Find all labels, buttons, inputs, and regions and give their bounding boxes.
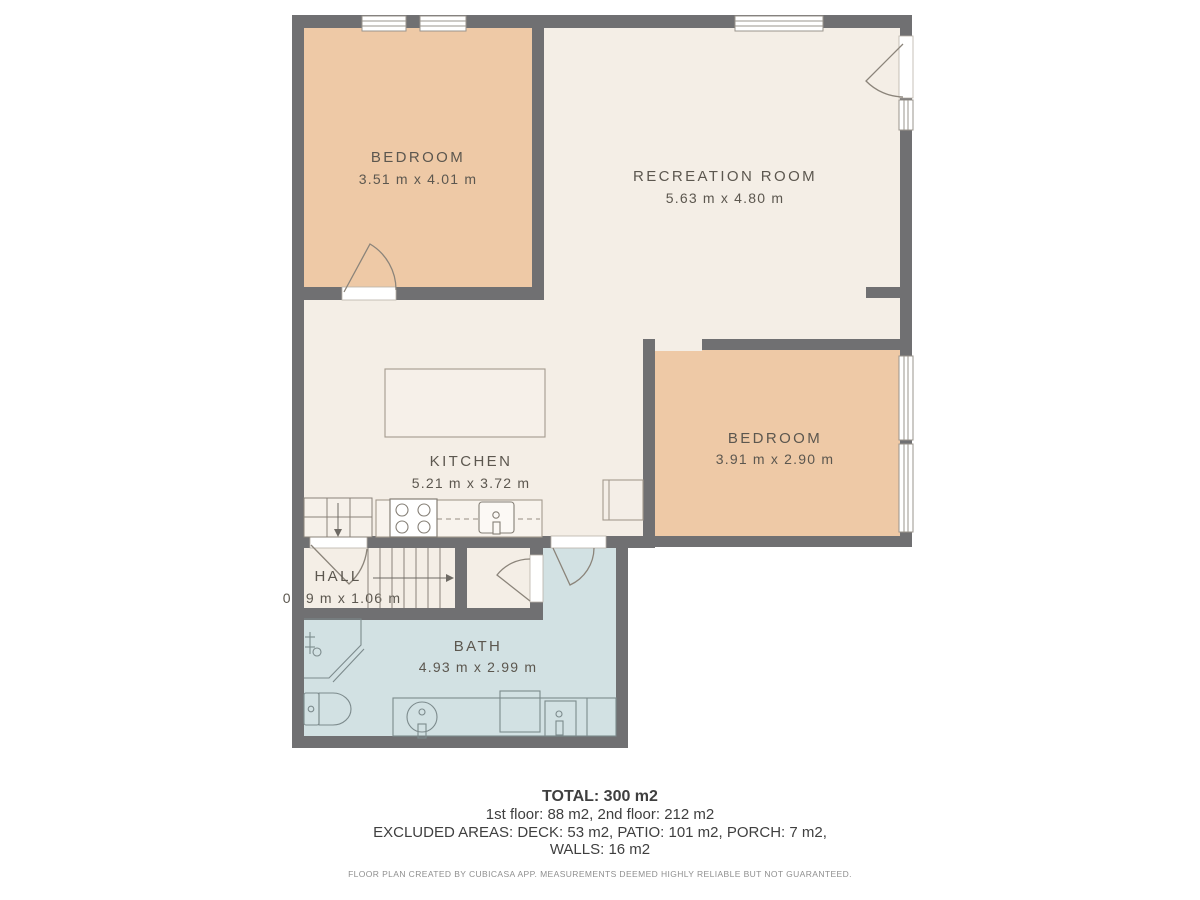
floorplan-page: 0.99 m x 1.06 m (0, 0, 1200, 900)
room-name-bath: BATH (454, 638, 503, 655)
threshold-bedroom1-door (342, 287, 396, 300)
window-recreation-top (735, 16, 823, 31)
wall-bottom-right-section (618, 536, 912, 547)
room-dims-recreation: 5.63 m x 4.80 m (666, 190, 784, 206)
room-dims-bedroom-2: 3.91 m x 2.90 m (716, 451, 834, 467)
threshold-closet-door (530, 555, 543, 602)
room-name-kitchen: KITCHEN (430, 453, 513, 470)
summary-block: TOTAL: 300 m2 1st floor: 88 m2, 2nd floo… (0, 788, 1200, 879)
room-name-recreation: RECREATION ROOM (633, 168, 817, 185)
wall-bath-right (616, 536, 628, 748)
wall-bath-bottom (292, 736, 628, 748)
summary-walls: WALLS: 16 m2 (0, 841, 1200, 859)
kitchen-sink-drain (493, 522, 500, 534)
wall-closet-left (455, 536, 467, 620)
summary-excluded-areas: EXCLUDED AREAS: DECK: 53 m2, PATIO: 101 … (0, 824, 1200, 842)
room-dims-bath: 4.93 m x 2.99 m (419, 659, 537, 675)
wall-bedroom2-left (643, 339, 655, 547)
wall-bedroom1-bottom (304, 287, 544, 300)
window-bedroom1-top-1 (362, 16, 406, 31)
window-bedroom1-top-2 (420, 16, 466, 31)
room-dims-kitchen: 5.21 m x 3.72 m (412, 475, 530, 491)
summary-total: TOTAL: 300 m2 (0, 788, 1200, 806)
disclaimer-text: FLOOR PLAN CREATED BY CUBICASA APP. MEAS… (0, 869, 1200, 879)
window-recreation-right (899, 100, 913, 130)
wall-hall-bottom (292, 608, 543, 620)
window-bedroom2-right-1 (899, 356, 913, 440)
room-name-bedroom-2: BEDROOM (728, 430, 822, 447)
summary-floors: 1st floor: 88 m2, 2nd floor: 212 m2 (0, 806, 1200, 824)
window-bedroom2-right-2 (899, 444, 913, 532)
kitchen-island (385, 369, 545, 437)
threshold-bath-door (551, 536, 606, 548)
floorplan-drawing: 0.99 m x 1.06 m (0, 0, 1200, 900)
wall-recreation-stub (866, 287, 912, 298)
stove (390, 499, 437, 537)
wall-bedroom2-top (702, 339, 900, 350)
room-name-bedroom-1: BEDROOM (371, 149, 465, 166)
threshold-hall-door (310, 536, 367, 548)
wall-bedroom1-right (532, 15, 544, 300)
opening-bedroom2-doorway (655, 338, 702, 351)
room-name-hall: HALL (314, 568, 361, 585)
room-dims-bedroom-1: 3.51 m x 4.01 m (359, 171, 477, 187)
wall-outer-left (292, 15, 304, 748)
